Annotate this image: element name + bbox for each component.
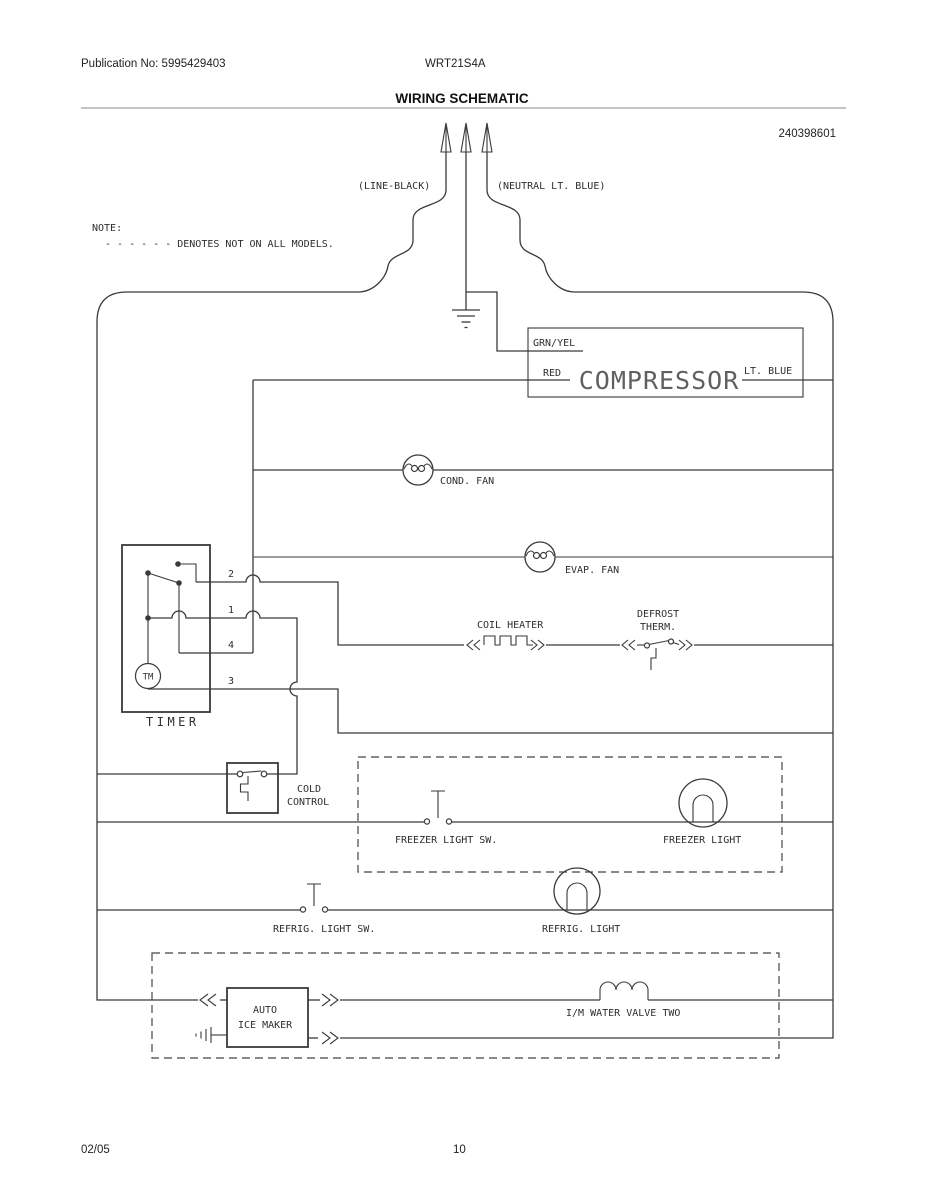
page-title: WIRING SCHEMATIC <box>395 91 528 106</box>
neutral-blue-label: (NEUTRAL LT. BLUE) <box>497 181 605 192</box>
circuit-bus <box>97 152 833 1038</box>
icemaker-connector-left <box>200 994 216 1006</box>
wire-1 <box>148 611 297 774</box>
wire-2 <box>196 575 464 645</box>
freezer-light-filament <box>693 795 713 822</box>
evap-fan-symbol: EVAP. FAN <box>253 542 833 576</box>
timer-terminal1-label: 1 <box>228 605 234 616</box>
note-block: NOTE: - - - - - - DENOTES NOT ON ALL MOD… <box>92 223 334 250</box>
water-valve-coil <box>600 982 648 1000</box>
coil-heater-symbol: COIL HEATER <box>467 620 620 650</box>
timer-switch-arm <box>148 573 179 583</box>
footer-page-number: 10 <box>453 1144 466 1156</box>
schematic-page: Publication No: 5995429403 WRT21S4A WIRI… <box>0 0 927 1200</box>
page-header: Publication No: 5995429403 WRT21S4A WIRI… <box>81 58 846 140</box>
line-black-label: (LINE-BLACK) <box>358 181 430 192</box>
publication-number: Publication No: 5995429403 <box>81 58 226 70</box>
diagram-part-number: 240398601 <box>778 128 836 140</box>
icemaker-label-1: AUTO <box>253 1005 277 1016</box>
timer-terminal2-link <box>178 564 196 582</box>
cold-control-box <box>227 763 278 813</box>
defrost-switch-arm <box>649 641 669 645</box>
timer-terminal4-label: 4 <box>228 640 234 651</box>
icemaker-box <box>227 988 308 1047</box>
cold-control-symbol: COLD CONTROL <box>97 763 329 813</box>
compressor-symbol: GRN/YEL RED LT. BLUE COMPRESSOR <box>253 328 833 653</box>
water-valve-label: I/M WATER VALVE TWO <box>566 1008 680 1019</box>
timer-terminal2-label: 2 <box>228 569 234 580</box>
cond-fan-symbol: COND. FAN <box>253 455 833 487</box>
cold-control-arm <box>243 771 262 773</box>
freezer-light-label: FREEZER LIGHT <box>663 835 741 846</box>
timer-wiring <box>148 575 833 774</box>
power-plug-symbol: (LINE-BLACK) (NEUTRAL LT. BLUE) <box>358 123 605 192</box>
defrost-connector-right <box>679 640 692 650</box>
freezer-optional-box <box>358 757 782 872</box>
freezer-light-bulb-circle <box>679 779 727 827</box>
refrig-light-sw-label: REFRIG. LIGHT SW. <box>273 924 375 935</box>
refrig-light-label: REFRIG. LIGHT <box>542 924 620 935</box>
note-text: - - - - - - DENOTES NOT ON ALL MODELS. <box>105 239 334 250</box>
icemaker-connector-top-right <box>322 994 338 1006</box>
refrig-light-switch-plunger <box>307 884 321 906</box>
compressor-ltblue-label: LT. BLUE <box>744 366 792 377</box>
wire-line-black-bus <box>97 152 446 1000</box>
coil-heater-connector-left <box>467 640 480 650</box>
icemaker-optional-box <box>152 953 779 1058</box>
timer-label: TIMER <box>146 715 200 729</box>
timer-symbol: TIMER TM 2 1 4 3 <box>122 545 234 729</box>
timer-box <box>122 545 210 712</box>
evap-fan-motor-circle <box>525 542 555 572</box>
water-valve-symbol <box>600 982 648 1000</box>
refrig-light-group: REFRIG. LIGHT SW. REFRIG. LIGHT <box>97 868 833 935</box>
defrost-label-2: THERM. <box>640 622 676 633</box>
icemaker-connector-bottom-right <box>322 1032 338 1044</box>
ice-maker-group: AUTO ICE MAKER I/M WATER VALVE TWO <box>152 953 833 1058</box>
defrost-connector-left <box>622 640 635 650</box>
compressor-name: COMPRESSOR <box>579 366 740 395</box>
freezer-light-sw-label: FREEZER LIGHT SW. <box>395 835 497 846</box>
coil-heater-element <box>484 636 533 645</box>
timer-terminal3-label: 3 <box>228 676 234 687</box>
ground-symbol <box>452 310 480 328</box>
compressor-red-label: RED <box>543 368 561 379</box>
coil-heater-label: COIL HEATER <box>477 620 544 631</box>
refrig-light-bulb-circle <box>554 868 600 914</box>
timer-motor-label: TM <box>143 673 154 683</box>
cold-control-bellows <box>241 776 249 801</box>
compressor-grnyel-label: GRN/YEL <box>533 338 575 349</box>
cold-control-label-2: CONTROL <box>287 797 329 808</box>
page-footer: 02/05 10 <box>81 1144 466 1156</box>
freezer-light-switch-plunger <box>431 791 445 818</box>
refrig-light-filament <box>567 883 587 910</box>
model-number: WRT21S4A <box>425 58 486 70</box>
icemaker-ground-symbol <box>196 1027 211 1043</box>
defrost-label-1: DEFROST <box>637 609 679 620</box>
cold-control-label-1: COLD <box>297 784 321 795</box>
cond-fan-label: COND. FAN <box>440 476 494 487</box>
wire-3 <box>148 689 833 733</box>
defrost-sensor-hook <box>651 648 656 670</box>
icemaker-label-2: ICE MAKER <box>238 1020 293 1031</box>
note-label: NOTE: <box>92 223 122 234</box>
evap-fan-label: EVAP. FAN <box>565 565 619 576</box>
defrost-thermostat-symbol: DEFROST THERM. <box>622 609 833 670</box>
footer-date: 02/05 <box>81 1144 110 1156</box>
cond-fan-motor-circle <box>403 455 433 485</box>
